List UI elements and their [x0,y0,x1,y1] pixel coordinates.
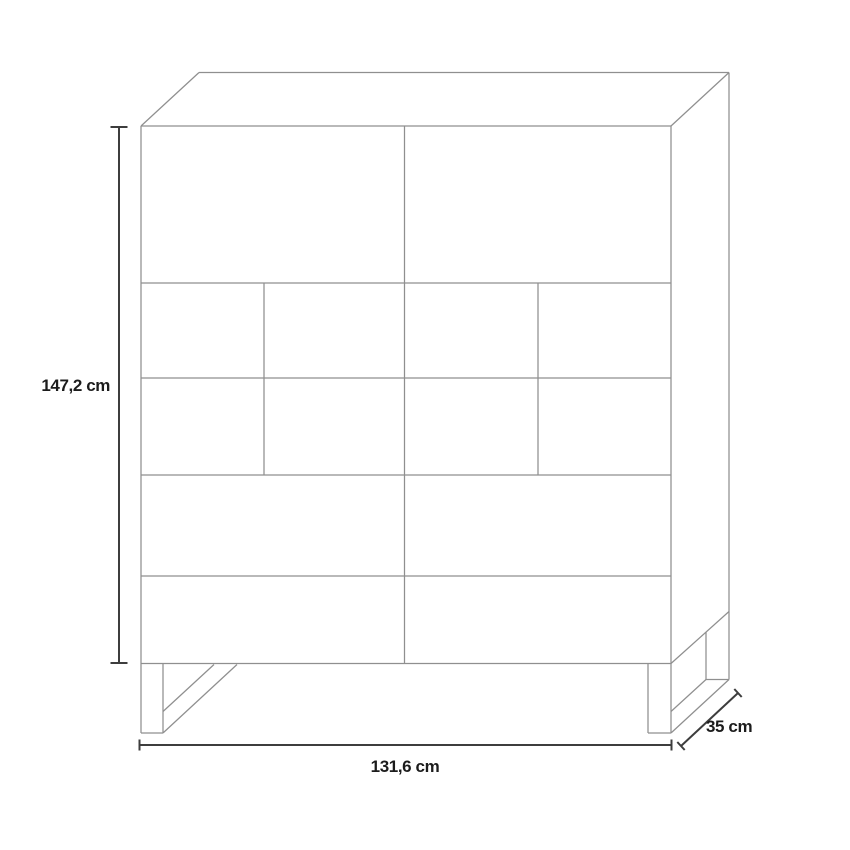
cabinet-edge-line [163,665,237,734]
cabinet-edge-line [163,665,214,712]
cabinet-edge-line [141,73,199,127]
diagram-canvas: 147,2 cm 131,6 cm 35 cm [0,0,850,850]
cabinet-edge-line [671,612,729,664]
width-dimension-label: 131,6 cm [305,756,505,778]
height-dimension-label: 147,2 cm [20,375,110,397]
cabinet-edge-line [671,73,729,127]
cabinet-edge-line [671,680,706,712]
depth-dimension-label: 35 cm [706,716,796,738]
